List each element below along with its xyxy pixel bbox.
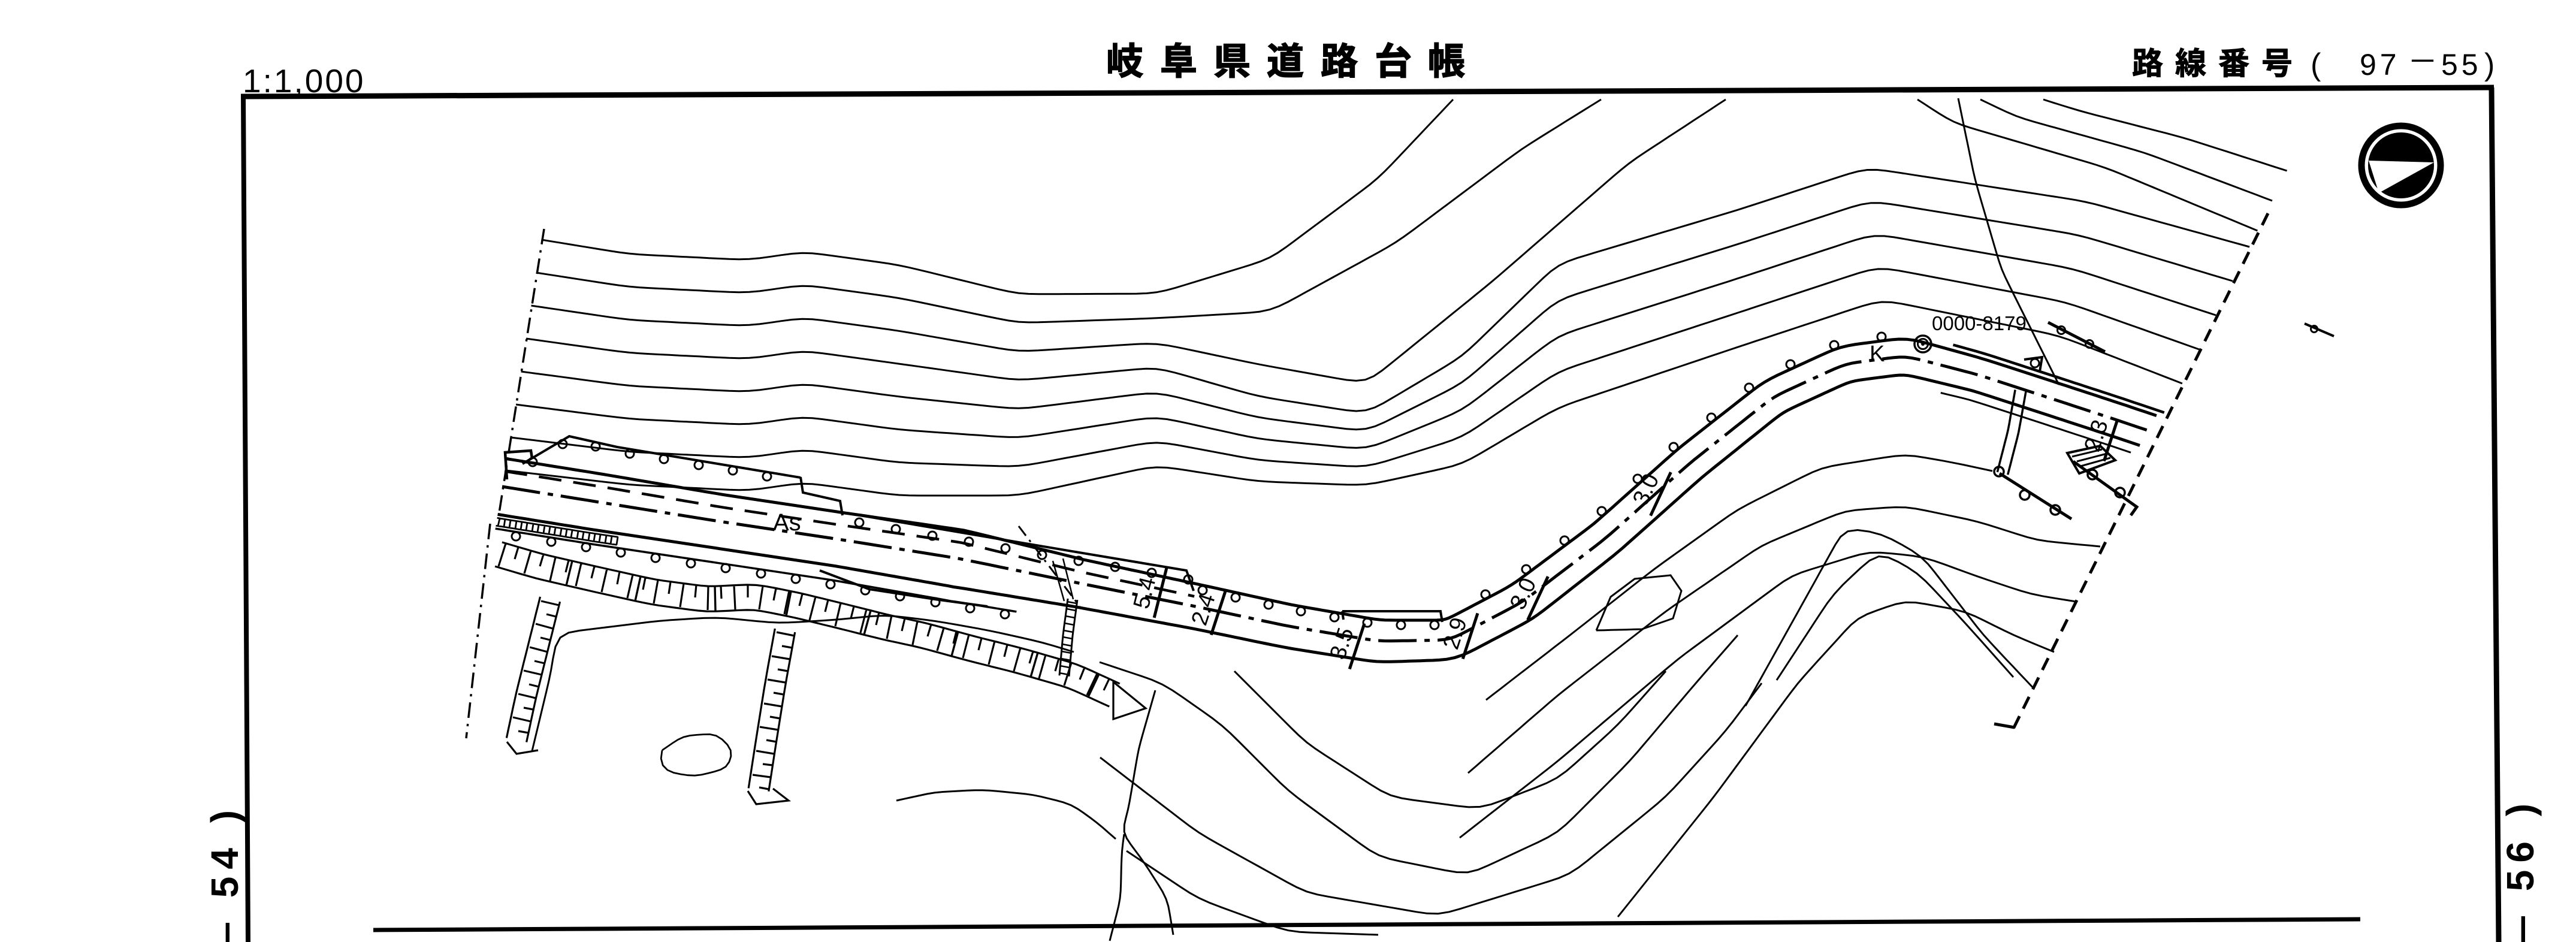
svg-text:0000-8179: 0000-8179 — [1932, 312, 2027, 334]
svg-text:(: ( — [2311, 47, 2321, 82]
svg-text:K: K — [1870, 342, 1885, 367]
svg-text:As: As — [773, 509, 801, 536]
svg-text:— 54 ): — 54 ) — [203, 803, 246, 942]
svg-text:55: 55 — [2441, 48, 2482, 81]
svg-text:): ) — [2484, 47, 2495, 82]
svg-text:— 56 ): — 56 ) — [2499, 796, 2542, 942]
svg-text:97: 97 — [2360, 48, 2400, 81]
svg-text:－: － — [2408, 45, 2438, 78]
